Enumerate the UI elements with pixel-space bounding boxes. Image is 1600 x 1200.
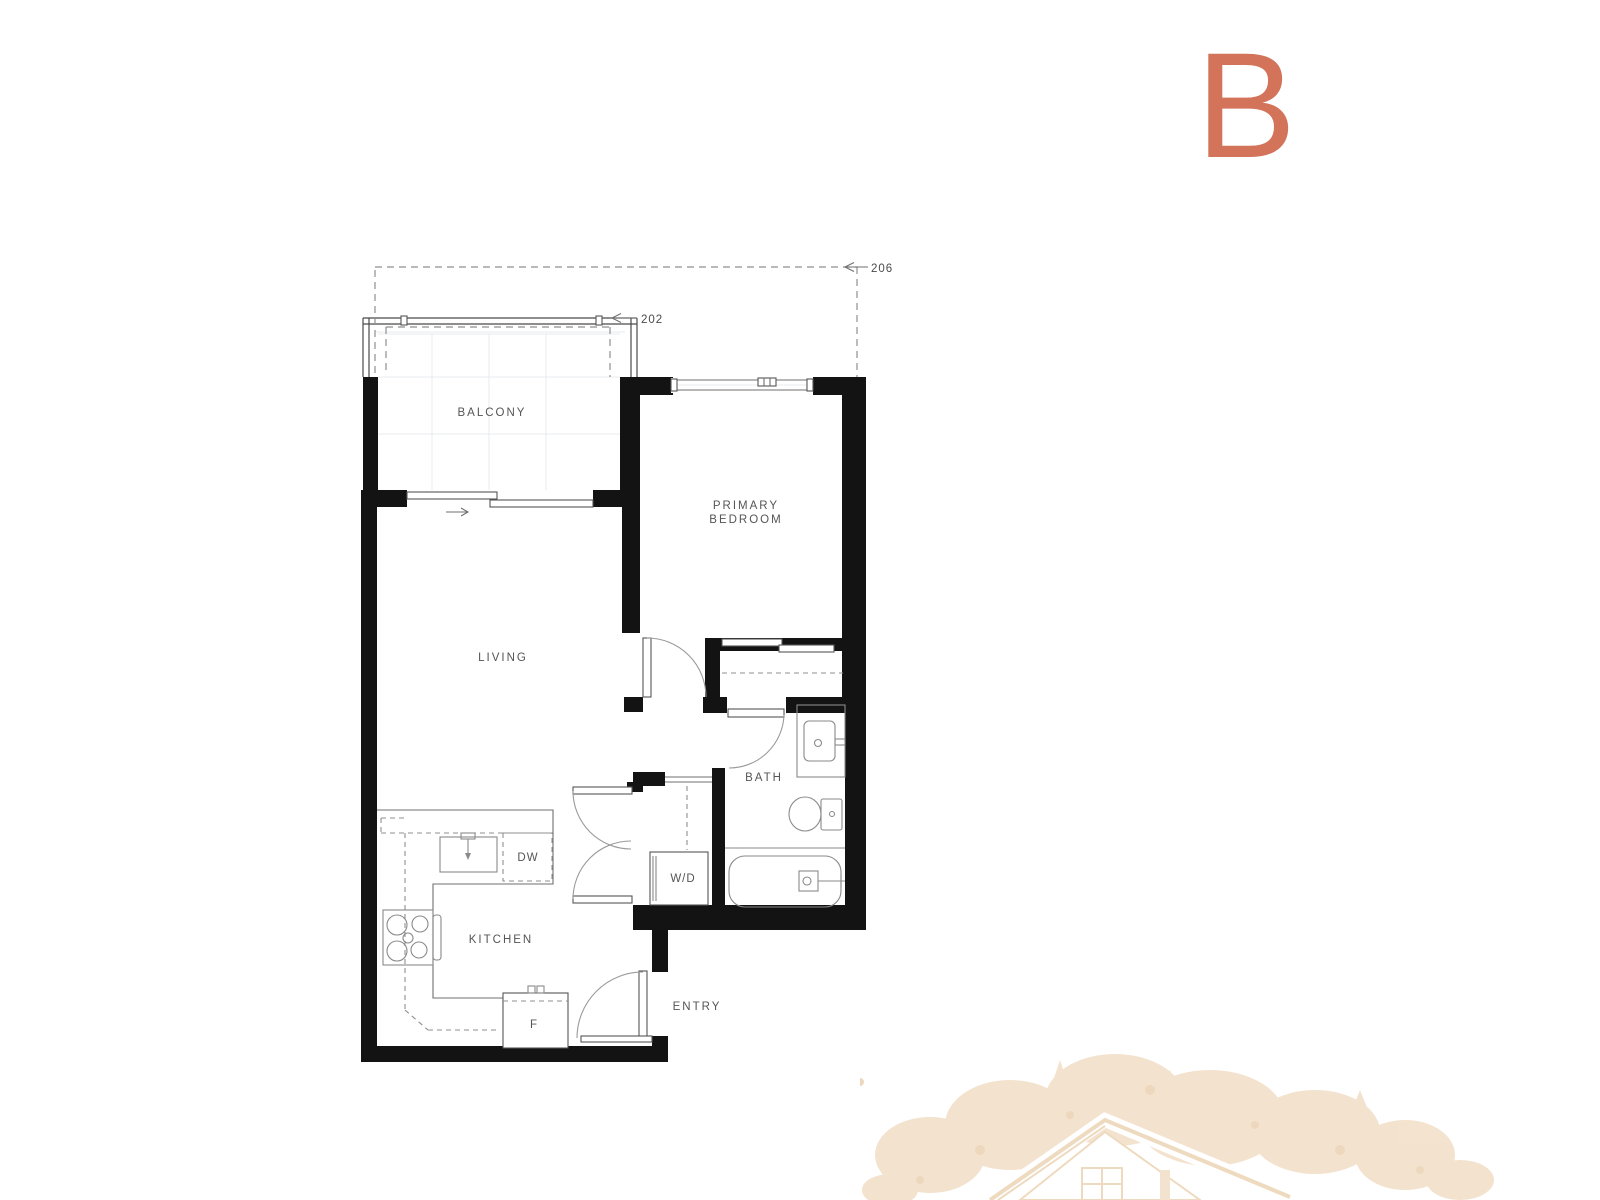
wall-left-outer xyxy=(361,490,377,1062)
label-washer-dryer: W/D xyxy=(670,873,695,885)
bathtub xyxy=(729,856,845,907)
wall-bath-right xyxy=(845,697,866,930)
dimension-label-balcony: 202 xyxy=(641,314,663,326)
wall-entry-lower xyxy=(652,1036,668,1062)
wall-entry-upper xyxy=(652,928,668,972)
label-balcony: BALCONY xyxy=(458,407,527,419)
entry-door xyxy=(577,971,652,1042)
bedroom-window xyxy=(671,378,813,393)
label-primary-bedroom-line1: PRIMARY xyxy=(713,500,779,512)
stove xyxy=(383,910,441,965)
wall-bath-left xyxy=(712,768,725,915)
wall-bath-top-left xyxy=(703,697,727,713)
wall-hall-stub xyxy=(624,697,643,712)
wall-living-bedroom xyxy=(622,377,640,633)
laundry-double-doors xyxy=(573,787,632,903)
dimension-label-overall: 206 xyxy=(871,263,893,275)
bath-door xyxy=(728,709,784,768)
bath-vanity-sink xyxy=(797,705,845,777)
closet-slider-panel-1 xyxy=(722,639,782,646)
dimension-lines xyxy=(375,263,868,381)
walls xyxy=(361,377,866,1062)
closet-slider-panel-2 xyxy=(779,645,834,652)
kitchen-sink xyxy=(440,833,497,872)
washer-dryer xyxy=(650,777,712,905)
balcony-railing xyxy=(363,316,637,377)
watermark-trees xyxy=(862,1054,1494,1200)
fridge xyxy=(503,986,568,1048)
label-kitchen: KITCHEN xyxy=(469,934,533,946)
watermark-illustration xyxy=(860,1020,1600,1200)
wall-right-outer xyxy=(842,377,866,710)
toilet xyxy=(789,797,842,831)
balcony-sliding-door xyxy=(407,492,593,516)
wall-bedroom-top-left xyxy=(620,377,673,395)
label-primary-bedroom-line2: BEDROOM xyxy=(709,514,782,526)
wall-wd-top-stub xyxy=(633,772,665,786)
wall-balcony-left xyxy=(363,377,378,493)
label-fridge: F xyxy=(530,1019,538,1031)
entry-door-sill xyxy=(581,1036,652,1042)
label-bath: BATH xyxy=(745,772,783,784)
label-entry: ENTRY xyxy=(673,1001,722,1013)
slide-direction-arrow xyxy=(446,508,468,516)
bedroom-door xyxy=(643,638,706,697)
label-living: LIVING xyxy=(478,652,528,664)
floorplan-page: B 206 202 xyxy=(0,0,1600,1200)
label-dishwasher: DW xyxy=(517,852,538,864)
wall-bath-bottom xyxy=(633,905,866,930)
